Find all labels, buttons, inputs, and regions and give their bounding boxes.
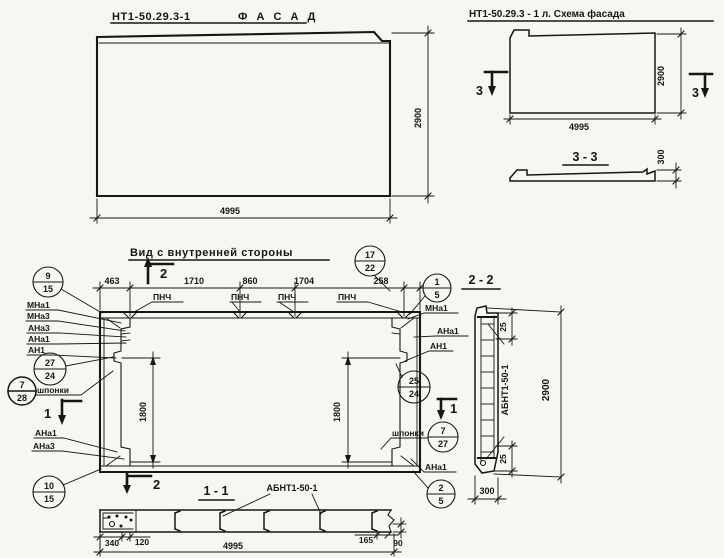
right-rib-profile	[392, 318, 407, 466]
marker-2-top: 2	[144, 257, 173, 283]
balloon-17-22-top: 17	[365, 250, 375, 260]
dim-463: 463	[104, 276, 119, 286]
section-2-2: 2 - 2 АБНТ1-50-1 2	[462, 273, 564, 504]
facade-dim-width: 4995	[90, 199, 397, 223]
schema-dim-height: 2900	[656, 28, 686, 119]
section-1-1-strip	[100, 510, 394, 532]
balloon-17-22-bot: 22	[365, 263, 375, 273]
balloon-7-27-top: 7	[440, 426, 445, 436]
label-ana1-left: АНа1	[28, 334, 50, 344]
section-1-1-dims-right: 165 90	[355, 518, 406, 548]
shponki-label-right: шпонки	[392, 428, 424, 438]
schema-view: НТ1-50.29.3 - 1 л. Схема фасада 3 3 2900	[468, 8, 713, 188]
facade-view: НТ1-50.29.3-1 Ф А С А Д 4995 2900	[90, 11, 434, 223]
marker-1-right: 1	[437, 399, 457, 420]
labels-left-top: МНа1 МНа3 АНа3 АНа1 АН1	[26, 300, 126, 358]
section-2-2-dim-bot-25: 25	[495, 441, 517, 477]
balloon-2-5-bot: 5	[438, 496, 443, 506]
section-1-1-stirrups	[175, 511, 377, 531]
drawing-sheet: НТ1-50.29.3-1 Ф А С А Д 4995 2900 НТ1-50…	[0, 0, 724, 558]
section-1-1: 1 - 1 АБНТ1-50-1	[94, 483, 406, 556]
dim-165-text: 165	[359, 535, 373, 545]
schema-marker-left-text: 3	[476, 84, 483, 98]
facade-title-code: НТ1-50.29.3-1	[112, 11, 191, 23]
section-2-2-dim-top-text: 25	[498, 322, 508, 332]
balloon-2-5-top: 2	[438, 483, 443, 493]
section-1-1-dims-left: 340 120	[94, 532, 150, 549]
inner-top-dims: 463 1710 860 1704 258	[93, 276, 427, 316]
label-ana3-left-bottom: АНа3	[33, 441, 55, 451]
balloon-7-28-top: 7	[19, 380, 24, 390]
pnch-label-4: ПНЧ	[338, 292, 356, 302]
balloon-9-15-bot: 15	[43, 284, 53, 294]
section-1-1-leader-1	[223, 494, 270, 516]
section-3-3: 3 - 3 300	[510, 149, 681, 188]
shponki-right-leader	[381, 438, 391, 449]
labels-left-bottom: АНа1 АНа3	[32, 428, 124, 459]
balloon-25-24-top: 25	[409, 376, 419, 386]
label-ana1-right-bottom: АНа1	[425, 462, 447, 472]
label-ana1-right: АНа1	[437, 326, 459, 336]
section-1-1-title: 1 - 1	[203, 484, 228, 498]
balloon-2-5: 2 5	[413, 471, 455, 508]
section-3-3-thickness-text: 300	[656, 149, 666, 164]
balloon-1-5-bot: 5	[434, 290, 439, 300]
pnch-label-1: ПНЧ	[153, 292, 171, 302]
balloon-1-5-top: 1	[434, 277, 439, 287]
label-an1-left: АН1	[28, 345, 45, 355]
marker-1-right-text: 1	[450, 401, 457, 416]
dim-1704: 1704	[294, 276, 314, 286]
dim-120-text: 120	[135, 537, 149, 547]
balloon-25-24: 25 24	[396, 364, 430, 403]
facade-dim-height: 2900	[392, 26, 434, 203]
section-2-2-dim-width-text: 300	[479, 486, 494, 496]
marker-2-top-text: 2	[160, 266, 167, 281]
marker-1-left: 1	[44, 400, 81, 425]
facade-title-name: Ф А С А Д	[238, 11, 318, 23]
dim-340-text: 340	[105, 538, 119, 548]
balloon-7-28: 7 28	[8, 377, 36, 405]
marker-1-left-text: 1	[44, 406, 51, 421]
facade-dim-height-text: 2900	[413, 108, 423, 128]
dim-258: 258	[373, 276, 388, 286]
section-2-2-dim-bot-text: 25	[498, 454, 508, 464]
inner-view-title: Вид с внутренней стороны	[130, 247, 293, 259]
section-1-1-leader-2	[312, 494, 321, 514]
label-an1-right: АН1	[430, 341, 447, 351]
balloon-7-27: 7 27	[428, 422, 458, 452]
facade-panel-outline	[97, 32, 390, 196]
dim-4995-bottom-text: 4995	[223, 541, 243, 551]
schema-section-marker-right: 3	[690, 74, 712, 100]
pnch-label-2: ПНЧ	[231, 292, 249, 302]
inner-view: Вид с внутренней стороны 2 463 1710	[8, 246, 468, 508]
label-mna1-right: МНа1	[425, 303, 448, 313]
dim-1800-left: 1800	[122, 352, 160, 468]
balloon-25-24-bot: 24	[409, 389, 419, 399]
dim-1800-right: 1800	[332, 352, 400, 468]
section-3-3-title: 3 - 3	[572, 150, 597, 164]
balloon-10-15-bot: 15	[44, 494, 54, 504]
facade-dim-width-text: 4995	[220, 206, 240, 216]
schema-title: НТ1-50.29.3 - 1 л. Схема фасада	[469, 8, 625, 20]
shponki-label-left: шпонки	[37, 385, 69, 395]
label-mna1-left: МНа1	[27, 300, 50, 310]
pnch-labels: ПНЧ ПНЧ ПНЧ ПНЧ	[134, 292, 402, 312]
balloon-7-27-bot: 27	[438, 439, 448, 449]
shponki-left-leader	[81, 371, 113, 395]
section-2-2-rebar-label: АБНТ1-50-1	[500, 365, 510, 416]
label-ana3-left: АНа3	[28, 323, 50, 333]
section-2-2-dim-height-text: 2900	[541, 378, 552, 401]
section-1-1-rebar-label: АБНТ1-50-1	[267, 483, 318, 493]
label-ana1-left-bottom: АНа1	[35, 428, 57, 438]
balloon-9-15-top: 9	[45, 271, 50, 281]
dim-860: 860	[242, 276, 257, 286]
dim-1800-left-text: 1800	[138, 402, 148, 422]
marker-2-bottom: 2	[123, 473, 160, 494]
panel-drawing: НТ1-50.29.3-1 Ф А С А Д 4995 2900 НТ1-50…	[0, 0, 724, 558]
section-2-2-dim-300: 300	[468, 476, 506, 504]
label-mna3-left: МНа3	[27, 311, 50, 321]
balloon-27-24-top: 27	[45, 358, 55, 368]
schema-section-marker-left: 3	[476, 72, 507, 98]
section-2-2-title: 2 - 2	[468, 273, 493, 287]
schema-dim-width: 4995	[504, 115, 661, 132]
inner-panel-outline	[100, 312, 420, 472]
schema-panel-outline	[510, 30, 655, 113]
schema-dim-height-text: 2900	[656, 66, 666, 86]
dim-90-text: 90	[393, 538, 403, 548]
schema-dim-width-text: 4995	[569, 122, 589, 132]
balloon-10-15: 10 15	[33, 469, 101, 508]
balloon-10-15-top: 10	[44, 481, 54, 491]
section-2-2-dim-top-25: 25	[496, 308, 517, 345]
section-3-3-plate	[510, 169, 655, 181]
balloon-7-28-bot: 28	[17, 393, 27, 403]
schema-marker-right-text: 3	[692, 86, 699, 100]
marker-2-bottom-text: 2	[153, 477, 160, 492]
balloon-27-24-bot: 24	[45, 371, 55, 381]
dim-1800-right-text: 1800	[332, 402, 342, 422]
dim-1710: 1710	[184, 276, 204, 286]
pnch-label-3: ПНЧ	[278, 292, 296, 302]
